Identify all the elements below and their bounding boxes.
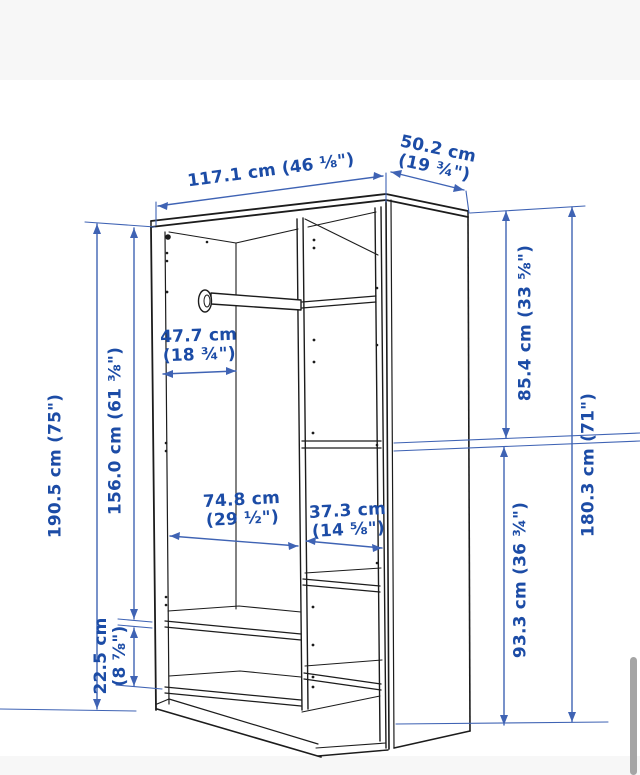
label-rail-depth: 47.7 cm (18 ¾") xyxy=(160,326,238,367)
label-plinth-height-cm: 22.5 cm xyxy=(92,617,111,694)
label-left-section-width: 74.8 cm (29 ½") xyxy=(203,489,282,531)
label-interior-height-right: 180.3 cm (71") xyxy=(580,393,599,537)
label-left-section-width-in: (29 ½") xyxy=(204,508,282,531)
label-upper-right-section-height: 85.4 cm (33 ⅝") xyxy=(517,245,536,401)
wardrobe-structure xyxy=(151,194,470,757)
label-overall-height: 190.5 cm (75") xyxy=(47,394,66,538)
label-interior-height-left: 156.0 cm (61 ⅜") xyxy=(107,347,126,515)
scrollbar-thumb[interactable] xyxy=(630,657,637,775)
label-plinth-height: 22.5 cm (8 ⅞") xyxy=(92,617,130,694)
label-right-section-width-in: (14 ⅝") xyxy=(310,519,388,542)
label-rail-depth-in: (18 ¾") xyxy=(160,345,238,367)
label-lower-right-section-height: 93.3 cm (36 ¾") xyxy=(512,502,531,658)
label-plinth-height-in: (8 ⅞") xyxy=(111,617,130,694)
product-dimension-diagram: 117.1 cm (46 ⅛") 50.2 cm (19 ¾") 190.5 c… xyxy=(0,0,640,775)
clothes-rail xyxy=(199,290,302,312)
label-right-section-width: 37.3 cm (14 ⅝") xyxy=(309,500,388,542)
